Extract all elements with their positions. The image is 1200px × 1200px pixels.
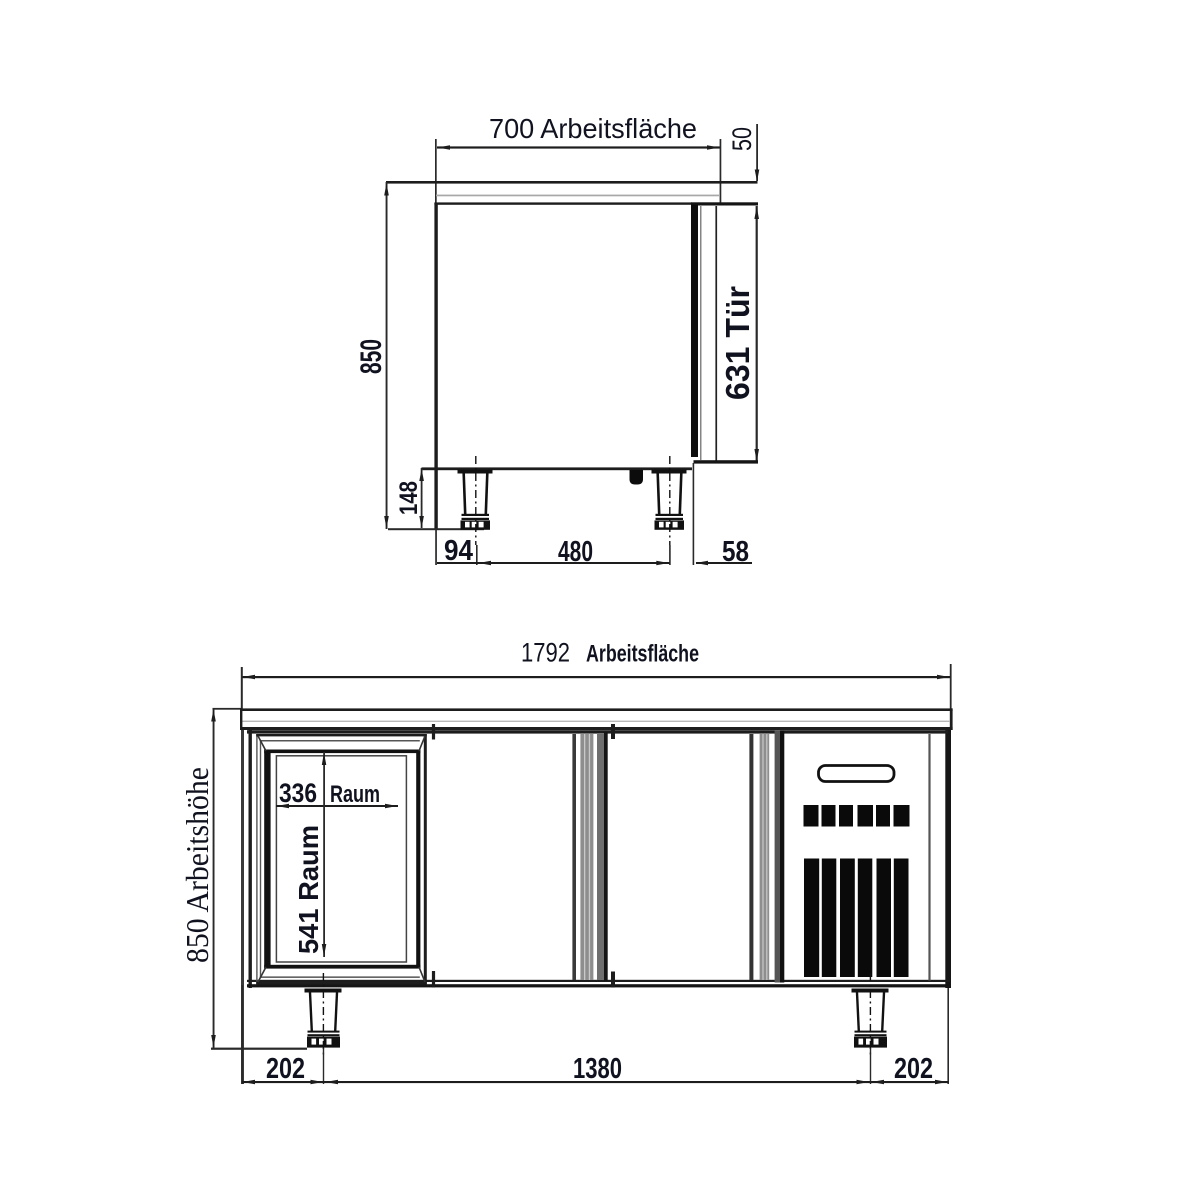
svg-text:541 Raum: 541 Raum [293,825,324,954]
svg-text:336: 336 [279,778,317,808]
svg-text:50: 50 [727,127,757,151]
svg-text:1792: 1792 [521,638,570,668]
svg-text:Arbeitsfläche: Arbeitsfläche [586,641,699,668]
svg-text:148: 148 [395,481,423,515]
svg-text:850 Arbeitshöhe: 850 Arbeitshöhe [179,767,215,963]
svg-text:58: 58 [722,536,749,568]
svg-text:94: 94 [444,535,473,567]
svg-text:202: 202 [266,1053,305,1085]
svg-text:202: 202 [894,1053,933,1085]
svg-text:700 Arbeitsfläche: 700 Arbeitsfläche [489,113,697,144]
svg-text:850: 850 [355,339,388,374]
svg-text:631 Tür: 631 Tür [719,286,756,400]
svg-text:Raum: Raum [330,781,380,808]
svg-text:1380: 1380 [573,1053,622,1085]
svg-text:480: 480 [558,536,593,568]
